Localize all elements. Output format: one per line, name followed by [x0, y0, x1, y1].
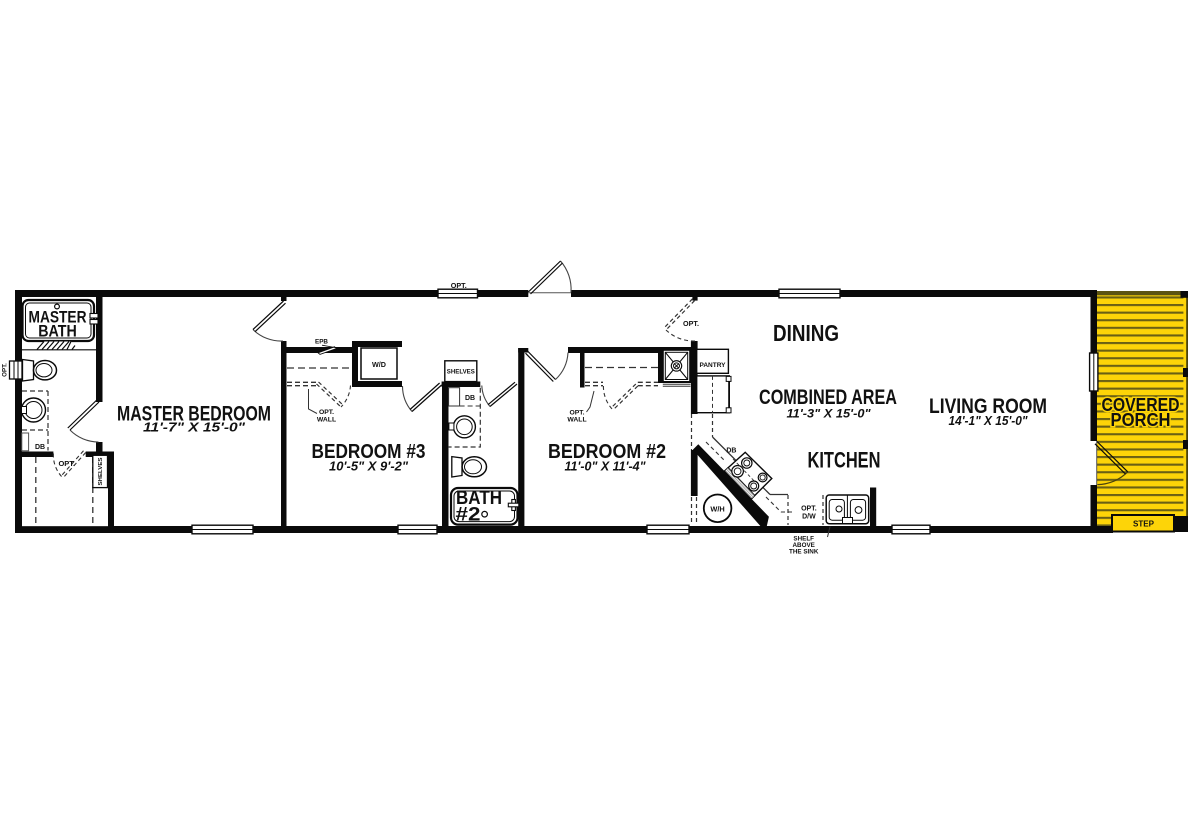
svg-text:11'-3" X 15'-0": 11'-3" X 15'-0" [787, 407, 871, 421]
svg-text:PORCH: PORCH [1111, 410, 1171, 430]
svg-text:KITCHEN: KITCHEN [808, 448, 881, 473]
svg-text:EPB: EPB [315, 339, 328, 346]
svg-text:#2: #2 [456, 505, 481, 526]
svg-text:DB: DB [726, 447, 736, 454]
svg-text:14'-1" X 15'-0": 14'-1" X 15'-0" [949, 414, 1029, 428]
svg-text:DINING: DINING [773, 320, 839, 346]
svg-text:WALL: WALL [317, 417, 336, 424]
svg-text:STEP: STEP [1133, 520, 1155, 529]
svg-text:OPT.: OPT. [683, 319, 699, 328]
svg-text:PANTRY: PANTRY [700, 362, 726, 369]
svg-text:OPT.: OPT. [58, 459, 75, 468]
svg-text:DB: DB [35, 444, 45, 451]
svg-text:SHELVES: SHELVES [98, 457, 104, 485]
svg-text:DB: DB [465, 395, 475, 402]
svg-text:10'-5" X 9'-2": 10'-5" X 9'-2" [329, 460, 409, 474]
svg-text:WALL: WALL [567, 417, 586, 424]
svg-text:W/H: W/H [710, 504, 724, 513]
svg-text:OPT.: OPT. [451, 281, 467, 290]
svg-text:OPT.: OPT. [801, 506, 817, 513]
svg-text:OPT.: OPT. [569, 410, 584, 417]
svg-text:SHELVES: SHELVES [447, 369, 475, 376]
svg-text:11'-0" X 11'-4": 11'-0" X 11'-4" [565, 460, 647, 474]
svg-text:W/D: W/D [372, 360, 386, 369]
svg-text:BATH: BATH [38, 323, 77, 341]
svg-text:11'-7" X 15'-0": 11'-7" X 15'-0" [143, 421, 246, 435]
svg-text:D/W: D/W [802, 513, 816, 520]
svg-text:THE SINK: THE SINK [789, 549, 819, 556]
svg-text:OPT.: OPT. [2, 363, 9, 377]
svg-text:OPT.: OPT. [319, 409, 334, 416]
